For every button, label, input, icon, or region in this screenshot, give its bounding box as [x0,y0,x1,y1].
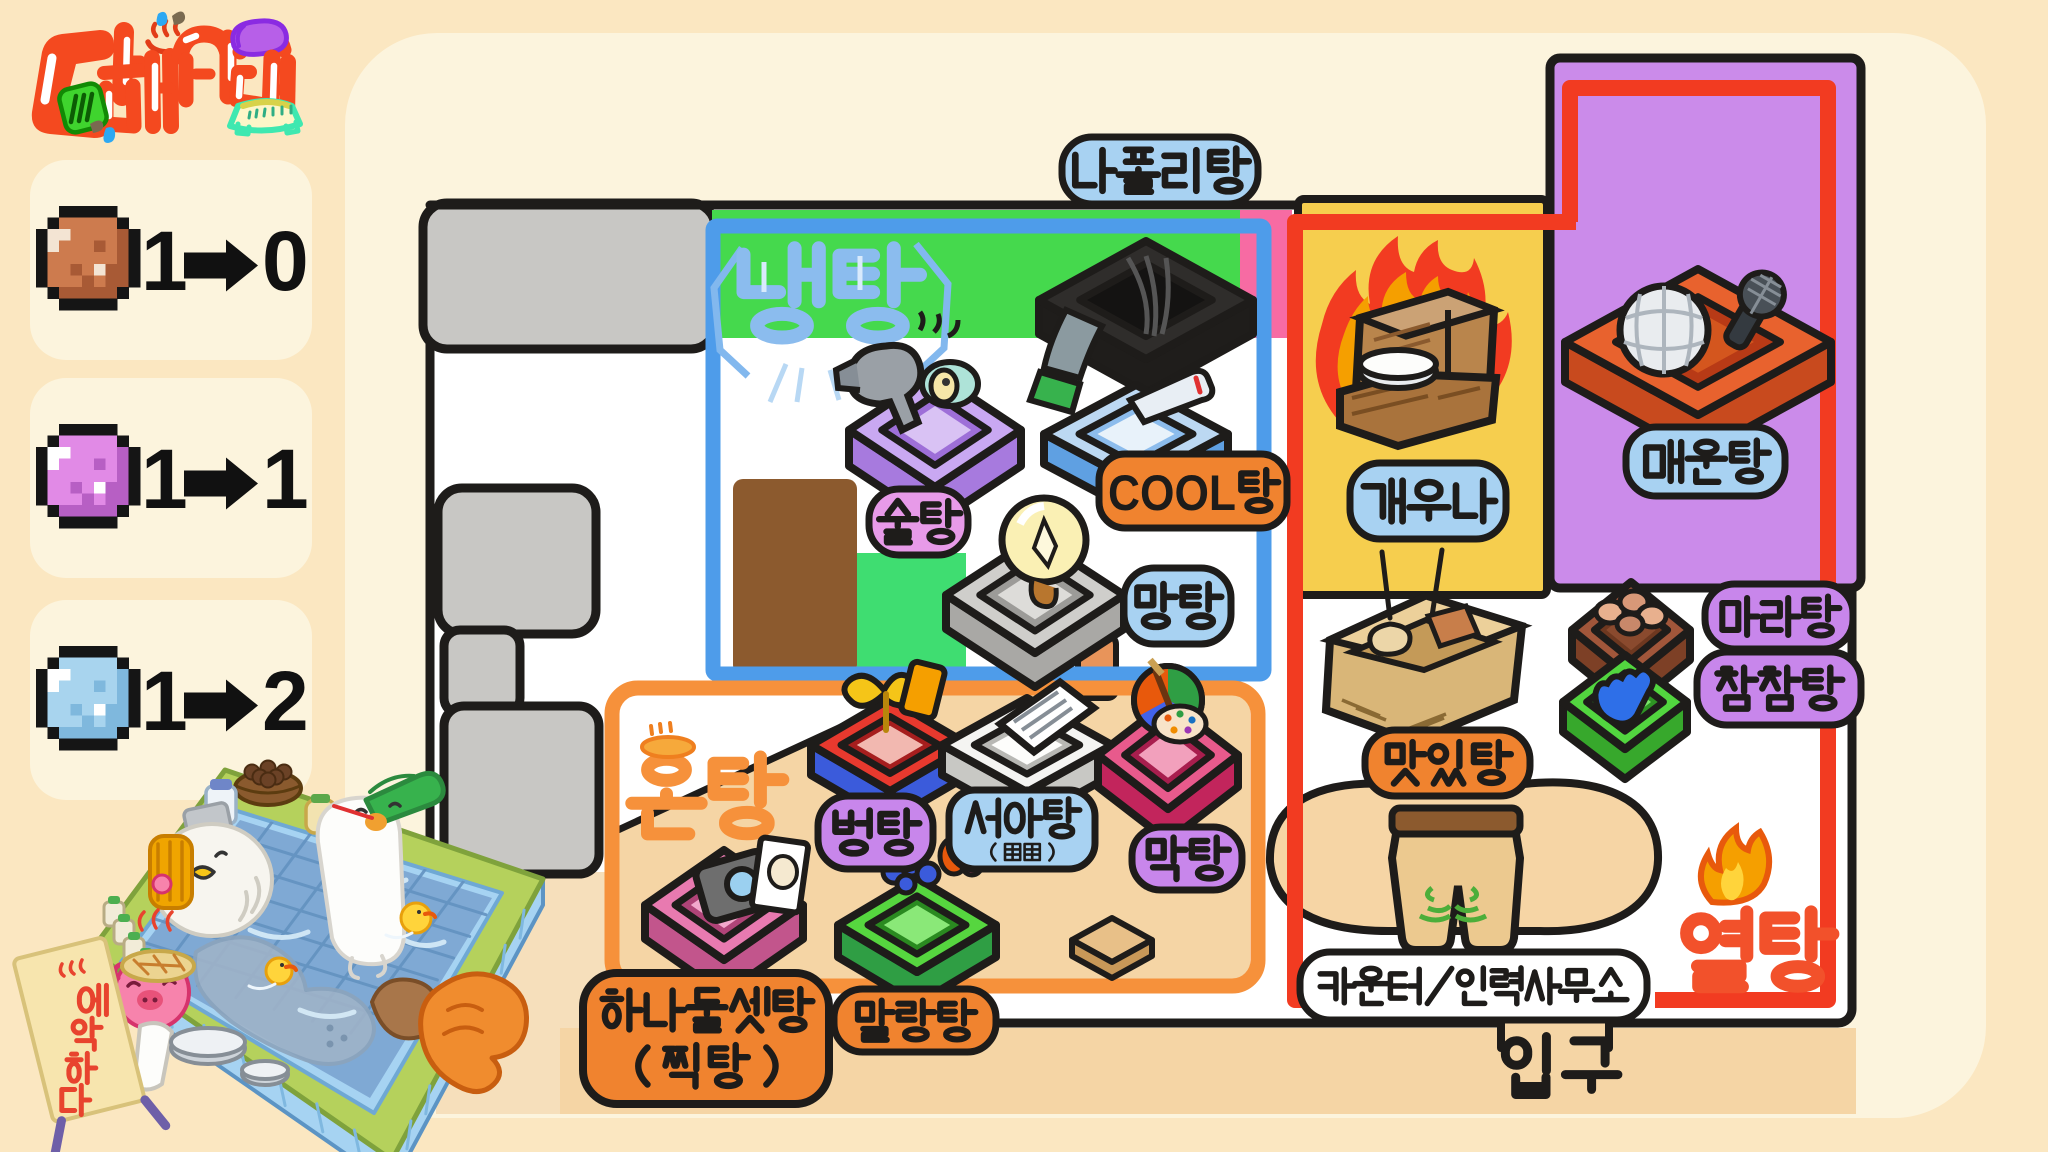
svg-text:0: 0 [262,214,309,308]
svg-text:1: 1 [141,214,188,308]
svg-text:2: 2 [262,654,309,748]
svg-text:1: 1 [141,654,188,748]
svg-text:1: 1 [141,432,188,526]
svg-text:1: 1 [262,432,309,526]
svg-text:COOL: COOL [1108,465,1236,521]
